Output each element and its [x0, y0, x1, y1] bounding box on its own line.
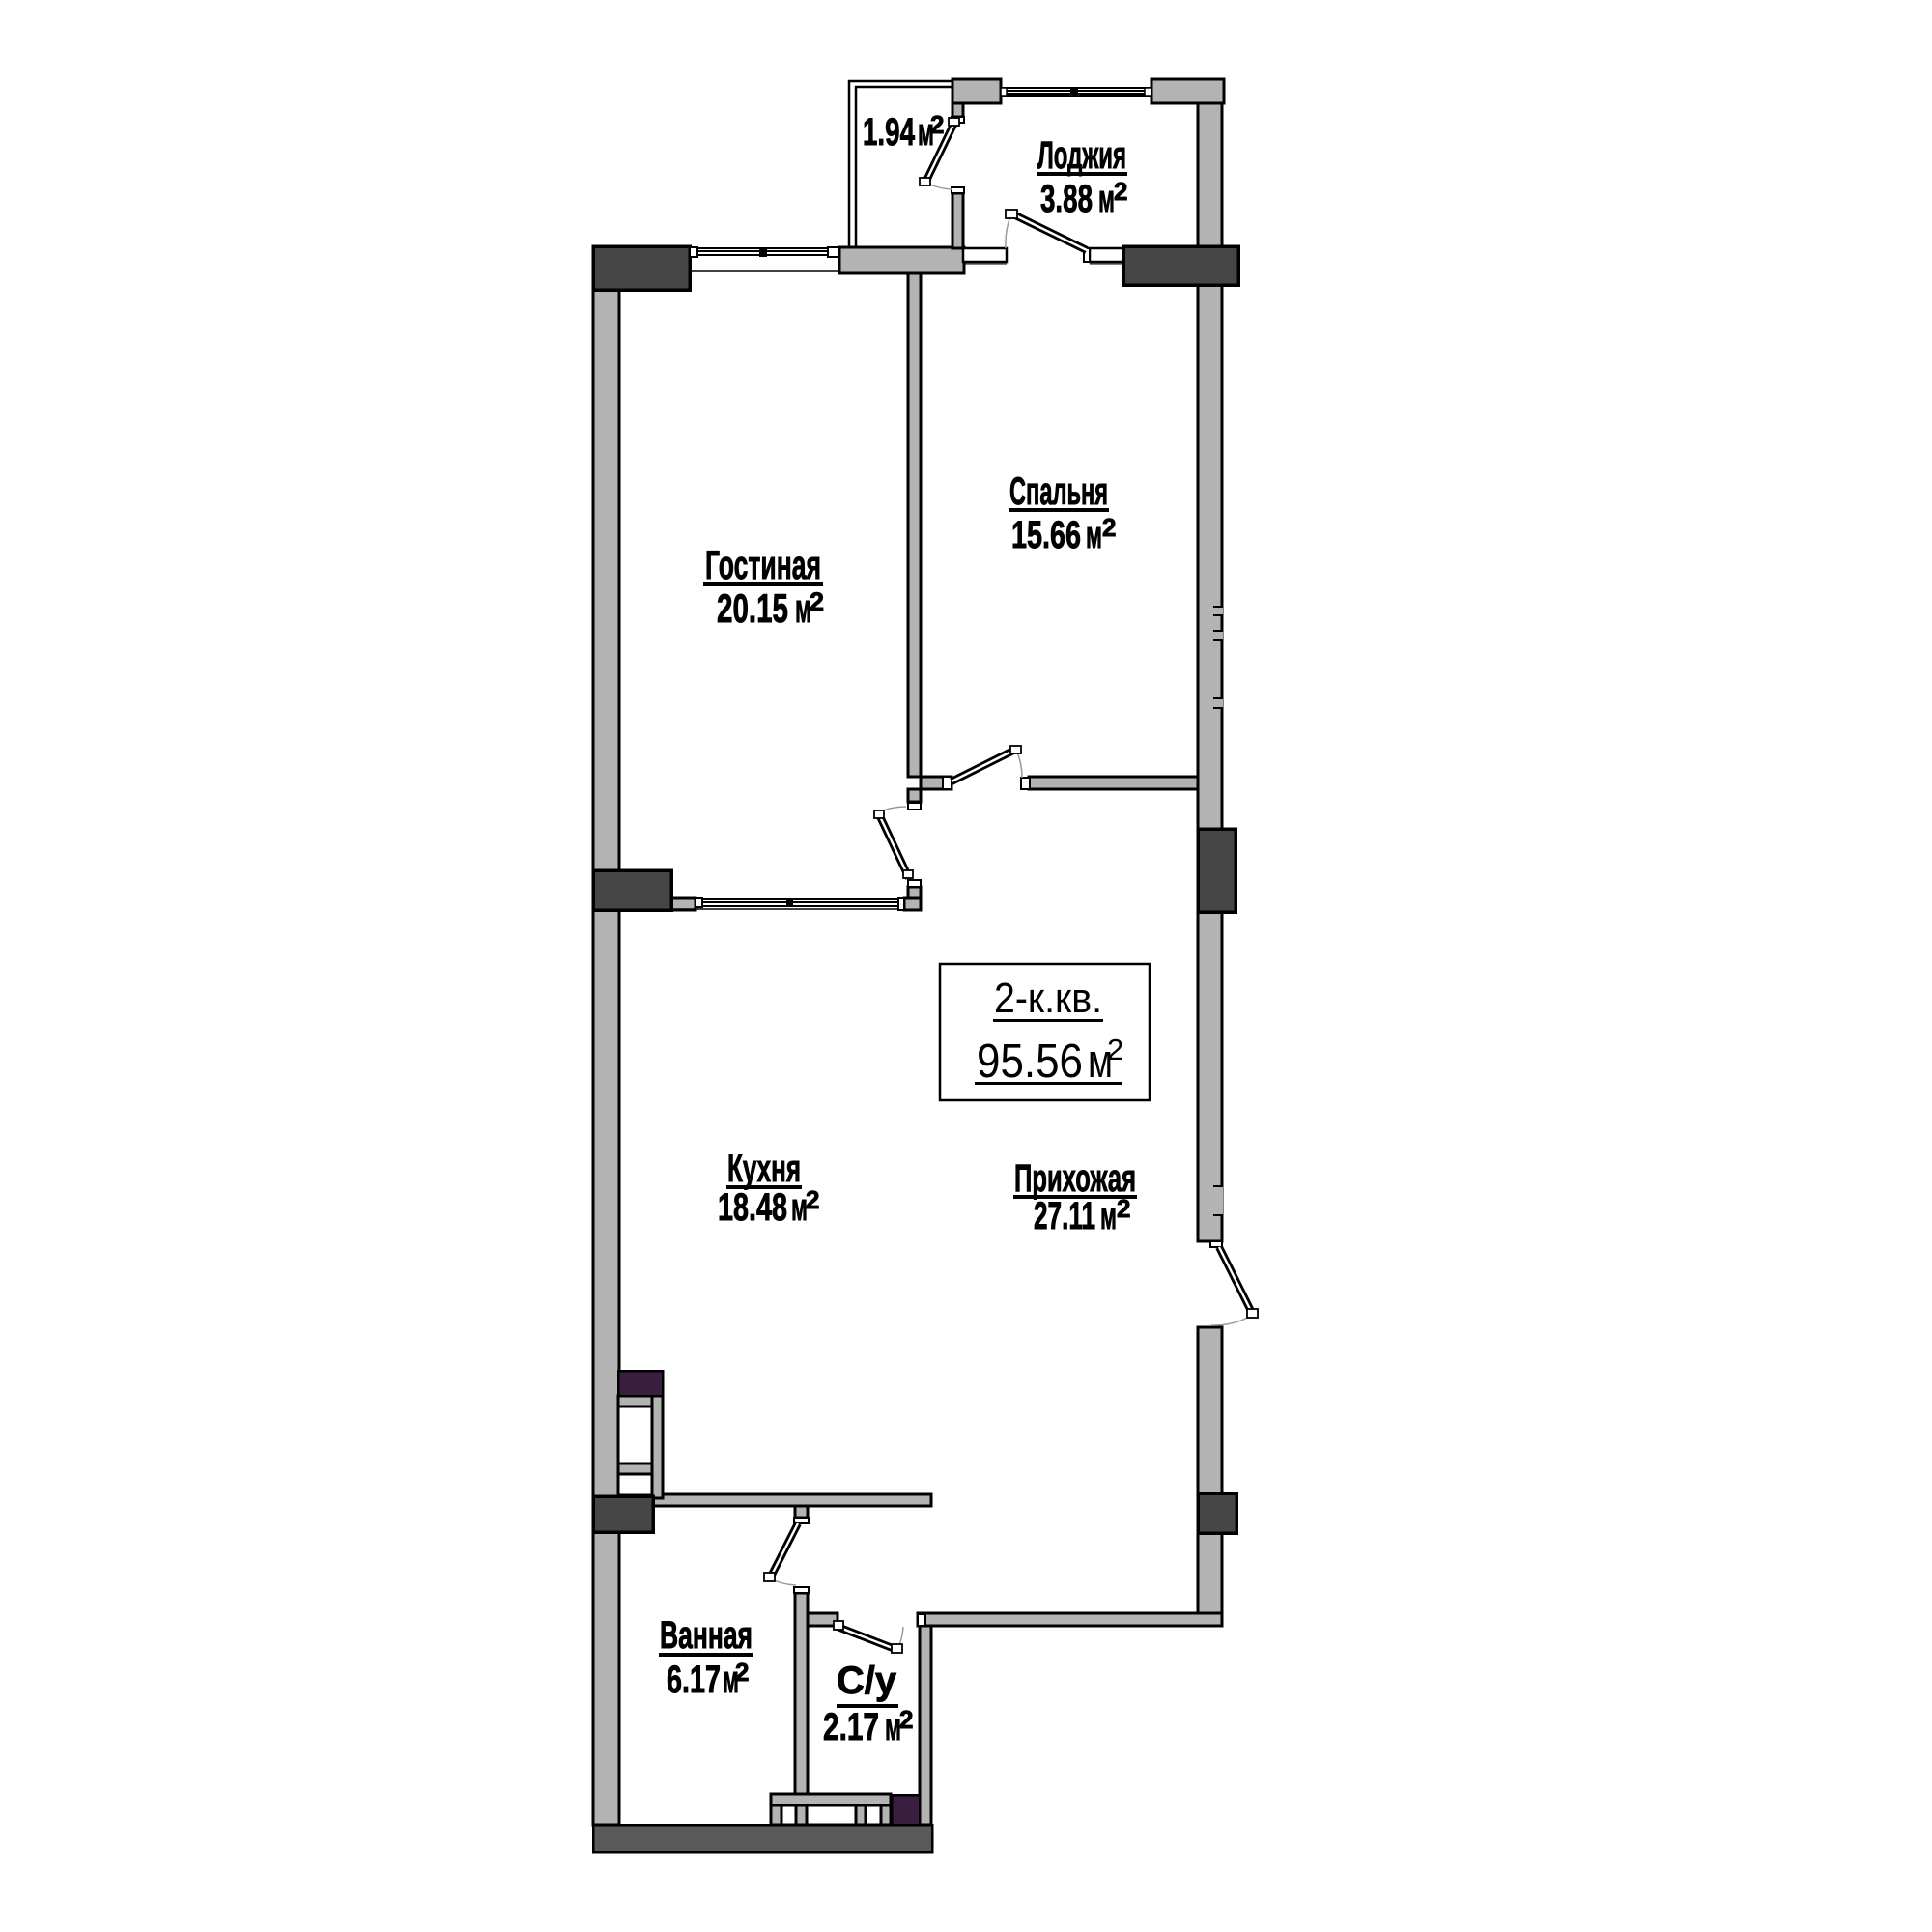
- svg-text:2: 2: [1107, 1033, 1123, 1066]
- svg-text:2: 2: [899, 1705, 913, 1734]
- svg-text:м: м: [1098, 178, 1115, 220]
- svg-text:2: 2: [1117, 1194, 1130, 1223]
- svg-text:2: 2: [806, 1185, 819, 1214]
- svg-text:м: м: [1086, 514, 1102, 556]
- svg-text:6.17: 6.17: [667, 1659, 721, 1701]
- svg-text:1.94: 1.94: [863, 111, 916, 154]
- svg-text:2-к.кв.: 2-к.кв.: [994, 975, 1102, 1022]
- svg-text:Лоджия: Лоджия: [1037, 134, 1126, 177]
- svg-text:2.17: 2.17: [823, 1706, 879, 1748]
- svg-text:95.56: 95.56: [977, 1036, 1083, 1088]
- svg-text:3.88: 3.88: [1040, 178, 1093, 220]
- svg-text:Гостиная: Гостиная: [705, 542, 821, 587]
- svg-text:Ванная: Ванная: [660, 1614, 753, 1657]
- svg-text:С/у: С/у: [837, 1660, 897, 1702]
- svg-text:2: 2: [1102, 513, 1116, 542]
- svg-text:18.48: 18.48: [718, 1186, 787, 1229]
- svg-text:м: м: [1100, 1195, 1117, 1237]
- svg-text:Спальня: Спальня: [1009, 470, 1108, 513]
- svg-text:27.11: 27.11: [1034, 1195, 1095, 1237]
- svg-text:2: 2: [930, 110, 944, 139]
- svg-text:2: 2: [810, 587, 824, 616]
- svg-text:20.15: 20.15: [717, 585, 788, 631]
- svg-text:15.66: 15.66: [1011, 514, 1081, 556]
- svg-text:Кухня: Кухня: [727, 1148, 801, 1190]
- svg-text:2: 2: [1114, 177, 1127, 206]
- svg-text:2: 2: [735, 1658, 749, 1687]
